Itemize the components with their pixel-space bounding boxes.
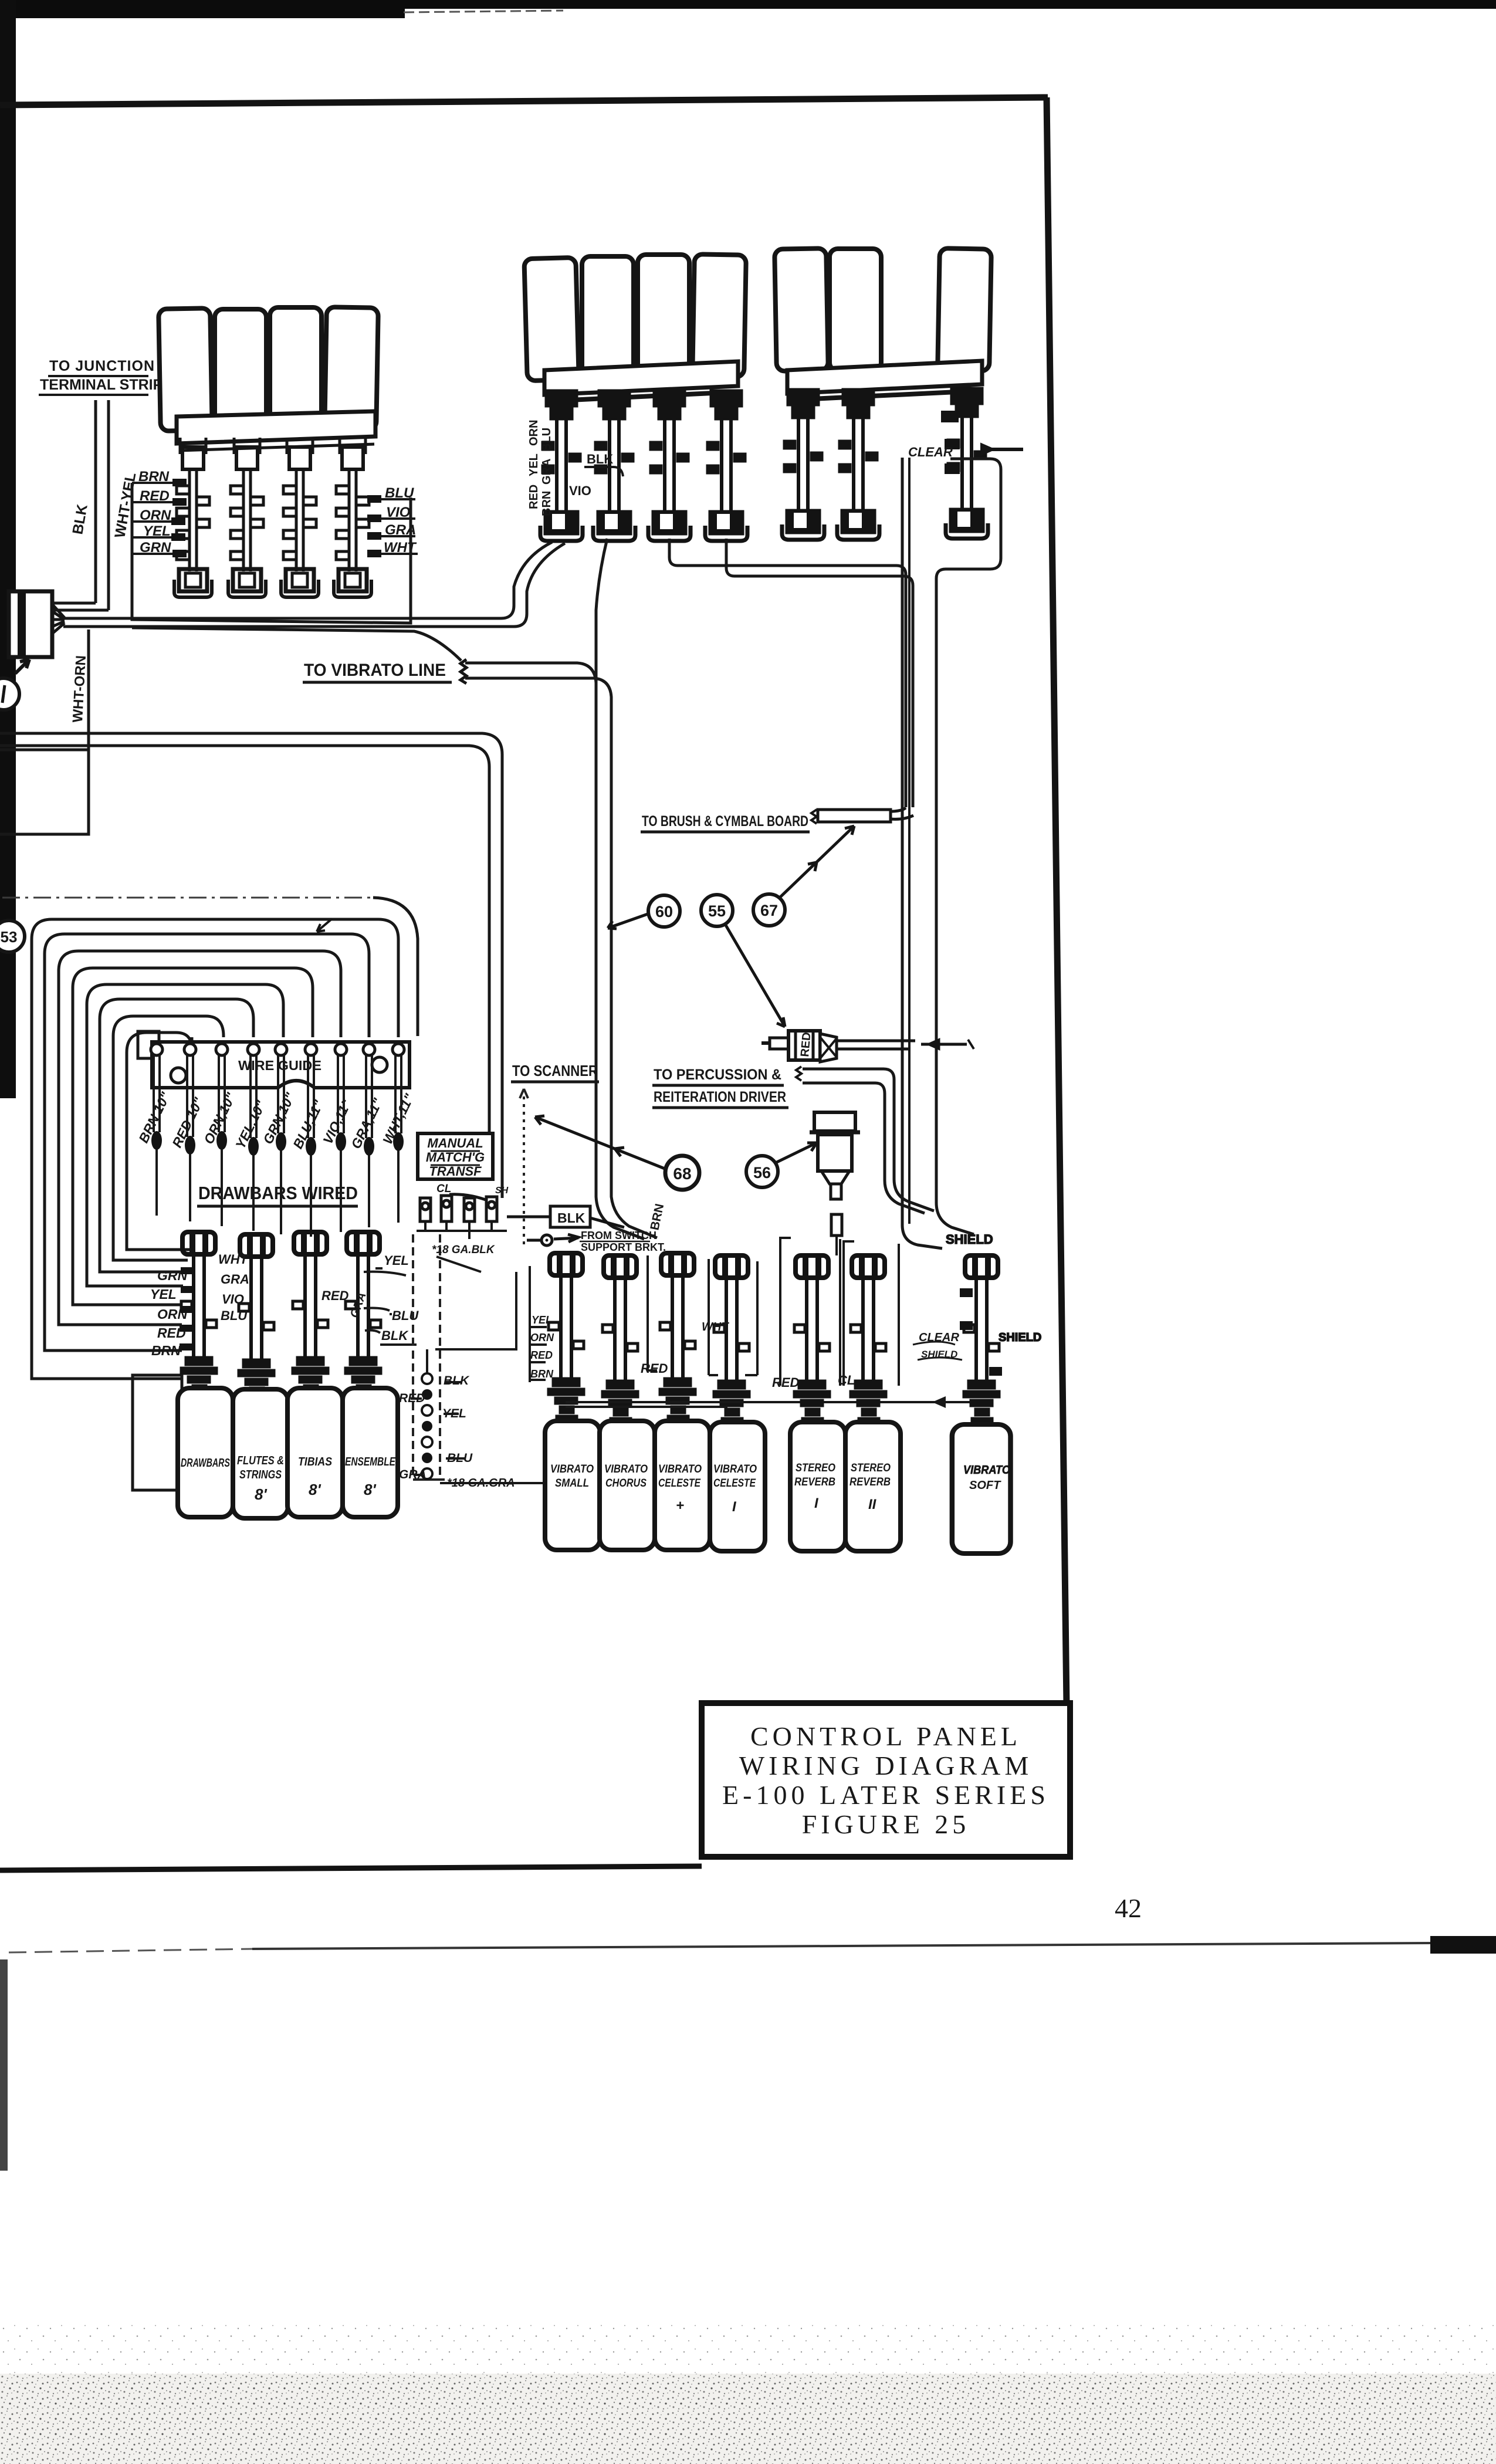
svg-text:TO PERCUSSION &: TO PERCUSSION & [654, 1067, 781, 1083]
svg-text:STEREO: STEREO [851, 1462, 891, 1474]
svg-text:GRA: GRA [540, 459, 553, 485]
svg-text:BRN: BRN [540, 491, 553, 516]
svg-text:42: 42 [1115, 1893, 1142, 1923]
svg-text:56: 56 [753, 1164, 771, 1182]
svg-text:CL: CL [436, 1183, 451, 1195]
svg-text:SH: SH [495, 1186, 509, 1196]
svg-text:SOFT: SOFT [969, 1479, 1001, 1492]
svg-text:YEL: YEL [527, 453, 540, 476]
svg-text:RED: RED [641, 1361, 668, 1376]
svg-text:SMALL: SMALL [555, 1477, 589, 1490]
svg-text:YEL: YEL [150, 1287, 177, 1302]
svg-text:RED: RED [530, 1349, 553, 1361]
svg-text:*18 GA.BLK: *18 GA.BLK [432, 1244, 495, 1256]
svg-text:TO VIBRATO LINE: TO VIBRATO LINE [304, 661, 446, 680]
svg-text:GRN: GRN [140, 540, 171, 556]
svg-text:E-100 LATER SERIES: E-100 LATER SERIES [722, 1780, 1050, 1810]
svg-text:BLU: BLU [392, 1308, 419, 1323]
svg-text:REVERB: REVERB [849, 1476, 891, 1488]
svg-text:+: + [676, 1498, 684, 1514]
svg-text:RED: RED [772, 1375, 800, 1390]
svg-text:ORN: ORN [140, 507, 171, 523]
svg-text:VIBRATO: VIBRATO [963, 1464, 1010, 1477]
svg-text:8': 8' [364, 1481, 376, 1498]
svg-text:CELESTE: CELESTE [658, 1477, 701, 1490]
svg-text:TRANSF: TRANSF [429, 1164, 482, 1179]
svg-text:VIBRATO: VIBRATO [658, 1463, 702, 1475]
svg-text:RED: RED [527, 485, 540, 509]
svg-text:TO SCANNER: TO SCANNER [512, 1062, 598, 1079]
svg-text:ENSEMBLE: ENSEMBLE [345, 1456, 396, 1468]
svg-text:VIO: VIO [222, 1292, 244, 1307]
svg-text:RED: RED [140, 488, 170, 504]
svg-text:BLK: BLK [557, 1210, 585, 1226]
svg-text:FLUTES &: FLUTES & [237, 1454, 284, 1467]
svg-text:8': 8' [309, 1481, 321, 1498]
svg-text:SUPPORT BRKT.: SUPPORT BRKT. [581, 1241, 666, 1253]
svg-text:TO BRUSH & CYMBAL BOARD: TO BRUSH & CYMBAL BOARD [642, 813, 808, 830]
svg-text:SHIELD: SHIELD [946, 1232, 993, 1247]
svg-text:II: II [868, 1497, 877, 1512]
svg-text:STRINGS: STRINGS [239, 1468, 282, 1481]
svg-text:SHIELD: SHIELD [999, 1331, 1041, 1344]
svg-text:VIBRATO: VIBRATO [550, 1463, 594, 1475]
svg-text:RED: RED [321, 1288, 349, 1303]
svg-text:DRAWBARS WIRED: DRAWBARS WIRED [198, 1183, 358, 1203]
svg-text:ORN: ORN [530, 1332, 554, 1343]
svg-text:CLEAR: CLEAR [908, 445, 953, 459]
svg-text:BLK: BLK [587, 452, 613, 466]
svg-text:GRA: GRA [221, 1272, 249, 1287]
svg-text:BRN: BRN [151, 1343, 181, 1358]
svg-text:CHORUS: CHORUS [605, 1477, 647, 1490]
svg-text:TERMINAL STRIP: TERMINAL STRIP [40, 377, 163, 393]
svg-text:REITERATION DRIVER: REITERATION DRIVER [654, 1089, 786, 1105]
svg-text:BRN: BRN [530, 1368, 554, 1380]
svg-text:CONTROL PANEL: CONTROL PANEL [750, 1721, 1021, 1751]
svg-text:VIBRATO: VIBRATO [604, 1463, 648, 1475]
svg-text:RED: RED [798, 1031, 814, 1057]
svg-text:YEL: YEL [384, 1253, 409, 1268]
svg-text:MANUAL: MANUAL [427, 1136, 483, 1150]
svg-text:CELESTE: CELESTE [713, 1477, 756, 1490]
svg-text:BLK: BLK [444, 1374, 470, 1387]
svg-text:53: 53 [1, 928, 18, 946]
svg-text:WHT: WHT [702, 1321, 729, 1333]
svg-text:MATCH'G: MATCH'G [426, 1150, 485, 1165]
svg-text:BLK: BLK [381, 1328, 409, 1343]
svg-text:68: 68 [673, 1165, 691, 1183]
svg-text:YEL: YEL [143, 523, 171, 539]
svg-text:55: 55 [708, 902, 726, 920]
svg-text:BLU: BLU [540, 428, 553, 452]
svg-text:STEREO: STEREO [796, 1462, 835, 1474]
svg-text:DRAWBARS: DRAWBARS [181, 1457, 230, 1470]
svg-text:REVERB: REVERB [794, 1476, 835, 1488]
svg-text:60: 60 [655, 903, 673, 920]
svg-text:VIO: VIO [569, 483, 591, 498]
svg-text:FIGURE 25: FIGURE 25 [802, 1809, 970, 1839]
svg-text:WHT: WHT [218, 1252, 249, 1267]
svg-text:VIO: VIO [386, 505, 411, 520]
svg-text:FROM SWITCH: FROM SWITCH [581, 1230, 656, 1241]
svg-text:GRA: GRA [399, 1468, 427, 1481]
svg-text:ORN: ORN [527, 420, 540, 446]
svg-text:BLU: BLU [221, 1308, 248, 1323]
svg-text:BRN: BRN [138, 469, 170, 485]
svg-text:TO JUNCTION: TO JUNCTION [49, 358, 155, 374]
svg-text:VIBRATO: VIBRATO [713, 1463, 757, 1475]
svg-text:WIRING DIAGRAM: WIRING DIAGRAM [739, 1751, 1033, 1781]
svg-text:8': 8' [255, 1485, 267, 1503]
svg-text:TIBIAS: TIBIAS [298, 1456, 333, 1468]
svg-text:67: 67 [760, 902, 778, 919]
